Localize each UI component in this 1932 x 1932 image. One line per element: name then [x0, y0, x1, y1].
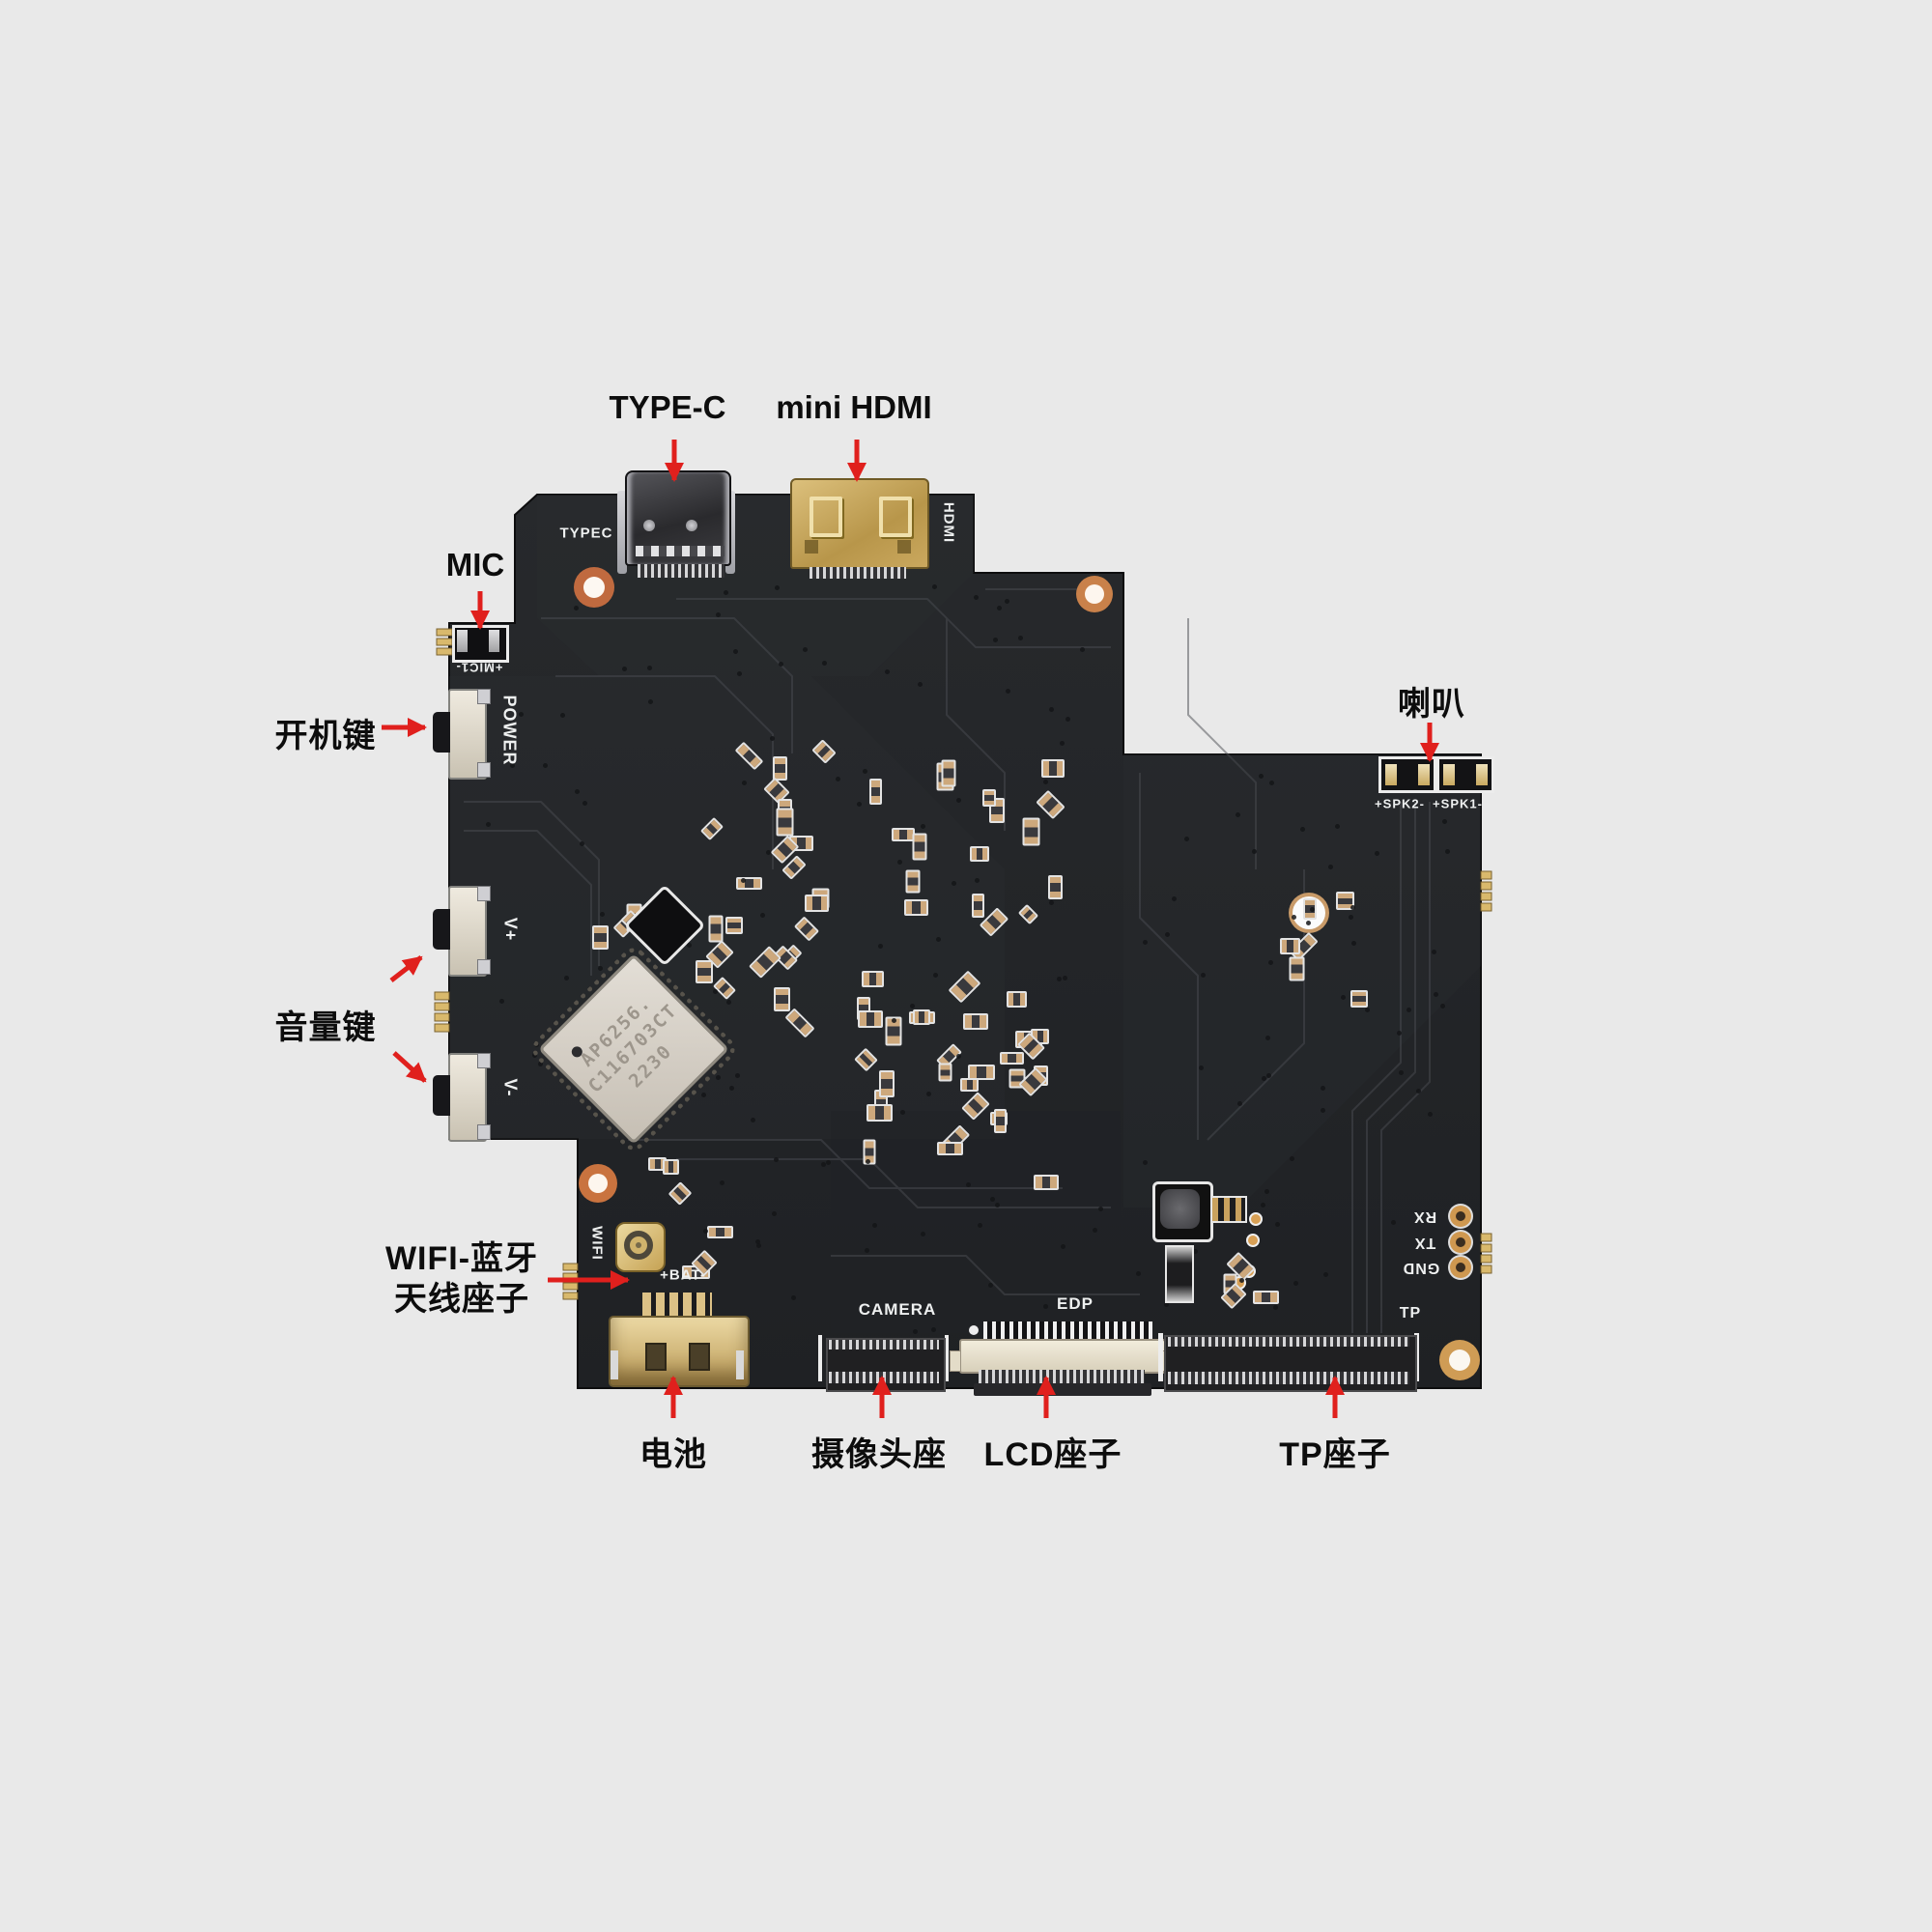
via-dot [1262, 1076, 1266, 1081]
camera-bracket [818, 1335, 822, 1381]
callout-wifi-antenna: WIFI-蓝牙 天线座子 [385, 1238, 538, 1320]
speaker-pad-spk2 [1378, 756, 1436, 793]
via-dot [1273, 1305, 1278, 1310]
callout-mic: MIC [446, 547, 505, 583]
speaker-pad-spk1 [1436, 756, 1494, 793]
smd-component [913, 1009, 930, 1025]
camera-pins-bottom [829, 1372, 939, 1383]
via-dot [956, 798, 961, 803]
smd-component [1253, 1291, 1279, 1304]
battery-connector [609, 1316, 750, 1387]
via-dot [932, 584, 937, 589]
volume-up-cap [477, 886, 491, 901]
via-dot [687, 943, 692, 948]
smd-component [904, 899, 928, 916]
via-dot [543, 763, 548, 768]
smd-component [1290, 957, 1305, 981]
via-dot [826, 1160, 831, 1165]
callout-mini-hdmi: mini HDMI [776, 389, 931, 426]
via-dot [918, 682, 923, 687]
via-dot [1391, 1220, 1396, 1225]
via-dot [978, 1223, 982, 1228]
via-dot [538, 1062, 543, 1066]
hdmi-notch [897, 540, 911, 554]
via-dot [1275, 1222, 1280, 1227]
smd-component [913, 834, 927, 861]
silkscreen-power: POWER [499, 695, 520, 765]
typec-screw-dot [686, 520, 697, 531]
via-dot [729, 1086, 734, 1091]
callout-speaker: 喇叭 [1398, 677, 1465, 724]
callout-wifi-antenna-line1: WIFI-蓝牙 [385, 1238, 538, 1279]
via-dot [600, 912, 605, 917]
smd-component [970, 846, 989, 862]
via-dot [760, 913, 765, 918]
via-dot [1199, 1065, 1204, 1070]
via-dot [995, 1203, 1000, 1207]
via-dot [774, 1157, 779, 1162]
via-dot [1259, 774, 1264, 779]
via-dot [716, 612, 721, 617]
callout-volume-key: 音量键 [275, 1001, 377, 1048]
via-dot [974, 595, 979, 600]
smd-component [1018, 904, 1038, 924]
smd-component [862, 971, 884, 987]
via-dot [1065, 717, 1070, 722]
via-dot [1432, 950, 1436, 954]
smd-component [968, 1065, 995, 1080]
via-dot [990, 1197, 995, 1202]
smd-component [592, 925, 609, 950]
via-dot [582, 801, 587, 806]
smd-component [1034, 1175, 1059, 1190]
via-dot [532, 1053, 537, 1058]
via-dot [913, 1329, 918, 1334]
callout-lcd: LCD座子 [984, 1428, 1122, 1475]
smd-component [858, 1010, 883, 1028]
silkscreen-v-plus: V+ [500, 918, 521, 942]
smd-component [1023, 818, 1040, 846]
via-dot [733, 649, 738, 654]
via-dot [735, 1073, 740, 1078]
smd-component [1350, 990, 1368, 1008]
smd-component [1000, 1052, 1024, 1065]
via-dot [952, 881, 956, 886]
via-dot [1018, 636, 1023, 640]
regulator-chip [1210, 1196, 1247, 1223]
smd-component [725, 917, 743, 934]
annotated-board-diagram: AP6256. C116703CT 2230 TYPEC HDMI +MIC1- [0, 0, 1932, 1932]
smd-component [713, 977, 736, 1000]
via-dot [1184, 837, 1189, 841]
via-dot [966, 1182, 971, 1187]
silkscreen-tp: TP [1400, 1305, 1421, 1322]
via-dot [857, 802, 862, 807]
via-dot [519, 712, 524, 717]
silkscreen-gnd: GND [1403, 1259, 1440, 1276]
ipex-center-pin [636, 1242, 641, 1248]
volume-up-cap [477, 959, 491, 975]
silkscreen-typec: TYPEC [559, 526, 612, 542]
via-dot [1445, 849, 1450, 854]
smd-component [707, 1226, 733, 1238]
via-dot [1406, 1008, 1411, 1012]
smd-component [963, 1013, 988, 1030]
power-inductor-core [1160, 1189, 1200, 1229]
via-dot [1252, 849, 1257, 854]
via-dot [822, 661, 827, 666]
via-dot [1268, 960, 1273, 965]
smd-component [774, 987, 790, 1011]
via-dot [1434, 992, 1438, 997]
via-dot [975, 878, 980, 883]
via-dot [926, 1092, 931, 1096]
silkscreen-v-minus: V- [500, 1078, 521, 1096]
smd-component [879, 1070, 895, 1097]
callout-camera: 摄像头座 [811, 1428, 947, 1475]
silkscreen-spk2: +SPK2- [1375, 797, 1425, 811]
via-dot [534, 1042, 539, 1047]
mic-pad [489, 630, 499, 652]
via-dot [803, 647, 808, 652]
silkscreen-rx: RX [1413, 1207, 1436, 1225]
silkscreen-tx: TX [1414, 1234, 1435, 1251]
tp-bracket [1158, 1333, 1163, 1381]
tp-pins-top [1168, 1337, 1409, 1347]
via-dot [865, 1248, 869, 1253]
via-dot [997, 606, 1002, 611]
smd-component [709, 916, 724, 943]
via-dot [1237, 1101, 1242, 1106]
via-dot [724, 590, 728, 595]
via-dot [1165, 932, 1170, 937]
via-dot [1043, 780, 1048, 784]
via-dot [1201, 973, 1206, 978]
smd-component [942, 760, 956, 787]
via-dot [598, 966, 603, 971]
via-dot [1143, 940, 1148, 945]
via-dot [1269, 781, 1274, 785]
smd-component [794, 916, 819, 941]
typec-screw-dot [643, 520, 655, 531]
smd-component [1007, 991, 1027, 1008]
via-dot [755, 1239, 760, 1244]
power-button-cap [477, 762, 491, 778]
via-dot [716, 1075, 721, 1080]
smd-component [972, 894, 984, 918]
via-dot [751, 1118, 755, 1122]
smd-component [811, 739, 836, 763]
via-dot [772, 1211, 777, 1216]
silkscreen-spk1: +SPK1- [1433, 797, 1483, 811]
via-dot [560, 713, 565, 718]
capacitor [1165, 1245, 1194, 1303]
via-dot [486, 822, 491, 827]
via-dot [1293, 1281, 1298, 1286]
via-dot [574, 606, 579, 611]
typec-solder-row [636, 546, 724, 556]
via-dot [1098, 1207, 1103, 1211]
smd-component [869, 779, 882, 805]
volume-down-cap [477, 1053, 491, 1068]
via-dot [622, 667, 627, 671]
via-dot [1043, 1304, 1048, 1309]
via-dot [766, 850, 771, 855]
via-dot [564, 976, 569, 980]
silkscreen-mic1: +MIC1- [456, 661, 503, 675]
via-dot [1005, 599, 1009, 604]
smd-component [1280, 938, 1300, 954]
via-dot [933, 973, 938, 978]
via-dot [1321, 1108, 1325, 1113]
via-dot [1060, 741, 1065, 746]
smd-component [805, 895, 829, 912]
smd-component [777, 809, 794, 837]
lcd-pins-top [983, 1321, 1152, 1339]
via-dot [956, 1054, 961, 1059]
smd-component [906, 870, 921, 894]
smd-component [939, 1064, 952, 1082]
via-dot [863, 769, 867, 774]
volume-down-cap [477, 1124, 491, 1140]
via-dot [1350, 905, 1355, 910]
via-dot [1328, 865, 1333, 869]
via-dot [1049, 900, 1054, 905]
via-dot [1335, 824, 1340, 829]
via-dot [791, 1295, 796, 1300]
smd-component [663, 1159, 679, 1175]
via-dot [742, 781, 747, 785]
tp-pins-bottom [1168, 1372, 1409, 1384]
typec-pins [638, 564, 724, 578]
smd-component [854, 1048, 878, 1072]
via-dot [701, 1093, 706, 1097]
via-dot [1290, 1156, 1294, 1161]
via-dot [779, 662, 783, 667]
via-dot [1239, 1278, 1244, 1283]
via-dot [1264, 1189, 1269, 1194]
hdmi-pins [810, 567, 906, 579]
via-dot [499, 999, 504, 1004]
smd-component [1041, 759, 1065, 778]
via-dot [1375, 851, 1379, 856]
via-dot [703, 1229, 708, 1234]
camera-pins-top [829, 1340, 939, 1350]
silkscreen-camera: CAMERA [859, 1300, 937, 1320]
via-dot [1292, 915, 1296, 920]
via-dot [1093, 1228, 1097, 1233]
smd-field [0, 0, 1932, 1932]
smd-component [961, 1092, 990, 1121]
lcd-wing [950, 1350, 961, 1372]
power-button-nub [433, 712, 450, 753]
via-dot [897, 860, 902, 865]
via-dot [1428, 1112, 1433, 1117]
callout-power-key: 开机键 [275, 709, 377, 756]
via-dot [720, 1180, 724, 1185]
lcd-base [974, 1383, 1151, 1396]
smd-component [949, 971, 981, 1004]
battery-pins [642, 1293, 712, 1318]
battery-clip [611, 1350, 618, 1379]
via-dot [936, 937, 941, 942]
via-dot [1080, 647, 1085, 652]
smd-component [867, 1104, 893, 1122]
volume-down-nub [433, 1075, 450, 1116]
via-dot [1261, 1203, 1265, 1207]
smd-component [700, 817, 724, 840]
smd-component [1048, 875, 1063, 899]
battery-slot [689, 1343, 710, 1371]
silkscreen-wifi: WIFI [589, 1226, 606, 1261]
smd-component [696, 960, 713, 983]
via-dot [910, 1004, 915, 1009]
smd-component [982, 789, 996, 807]
via-dot [737, 671, 742, 676]
via-dot [836, 777, 840, 781]
hdmi-staple [879, 497, 912, 537]
via-dot [775, 585, 780, 590]
via-dot [1300, 827, 1305, 832]
via-dot [866, 1159, 870, 1164]
via-dot [885, 669, 890, 674]
battery-slot [645, 1343, 667, 1371]
via-dot [1306, 921, 1311, 925]
via-dot [1416, 1089, 1421, 1094]
via-dot [1397, 1031, 1402, 1036]
via-dot [1172, 896, 1177, 901]
smd-component [668, 1181, 693, 1206]
smd-component [937, 1142, 963, 1155]
smd-component [784, 1008, 814, 1037]
silkscreen-hdmi: HDMI [941, 502, 957, 543]
via-dot [580, 841, 584, 846]
via-dot [1236, 812, 1240, 817]
smd-component [960, 1078, 979, 1092]
callout-typec: TYPE-C [609, 389, 725, 426]
via-dot [872, 1223, 877, 1228]
via-dot [993, 638, 998, 642]
via-dot [1399, 1070, 1404, 1075]
via-dot [648, 699, 653, 704]
smd-component [994, 1109, 1007, 1133]
via-dot [647, 666, 652, 670]
via-dot [892, 1018, 896, 1023]
via-dot [770, 736, 775, 741]
via-dot [1266, 1073, 1271, 1078]
smd-component [1036, 790, 1065, 819]
silkscreen-edp: EDP [1057, 1294, 1094, 1314]
callout-tp: TP座子 [1279, 1428, 1390, 1475]
via-dot [1143, 1160, 1148, 1165]
hdmi-staple [810, 497, 842, 537]
via-dot [575, 789, 580, 794]
via-dot [988, 1283, 993, 1288]
power-button-cap [477, 689, 491, 704]
volume-up-nub [433, 909, 450, 950]
via-dot [921, 1232, 925, 1236]
mic-pad [457, 630, 468, 652]
silkscreen-bat: +BAT- [660, 1267, 706, 1284]
via-dot [1061, 1244, 1065, 1249]
via-dot [1341, 995, 1346, 1000]
callout-wifi-antenna-line2: 天线座子 [385, 1279, 538, 1320]
callout-battery: 电池 [639, 1428, 707, 1475]
via-dot [900, 1110, 905, 1115]
via-dot [1049, 707, 1054, 712]
via-dot [1442, 819, 1447, 824]
via-dot [1440, 1004, 1445, 1009]
via-dot [1349, 915, 1353, 920]
via-dot [1057, 977, 1062, 981]
via-dot [1321, 1086, 1325, 1091]
via-dot [741, 878, 746, 883]
via-dot [1063, 976, 1067, 980]
battery-clip [736, 1350, 744, 1379]
via-dot [713, 989, 718, 994]
via-dot [1136, 1271, 1141, 1276]
via-dot [931, 1327, 936, 1332]
via-dot [1006, 689, 1010, 694]
smd-component [735, 742, 764, 771]
via-dot [1323, 1272, 1328, 1277]
lcd-connector [959, 1339, 1166, 1374]
smd-component [736, 877, 762, 890]
via-dot [921, 824, 925, 829]
via-dot [1351, 941, 1356, 946]
via-dot [1310, 907, 1315, 912]
smd-component [892, 828, 915, 841]
via-dot [1265, 1036, 1270, 1040]
via-dot [726, 1000, 731, 1005]
via-dot [878, 944, 883, 949]
hdmi-notch [805, 540, 818, 554]
via-dot [1365, 1008, 1370, 1012]
